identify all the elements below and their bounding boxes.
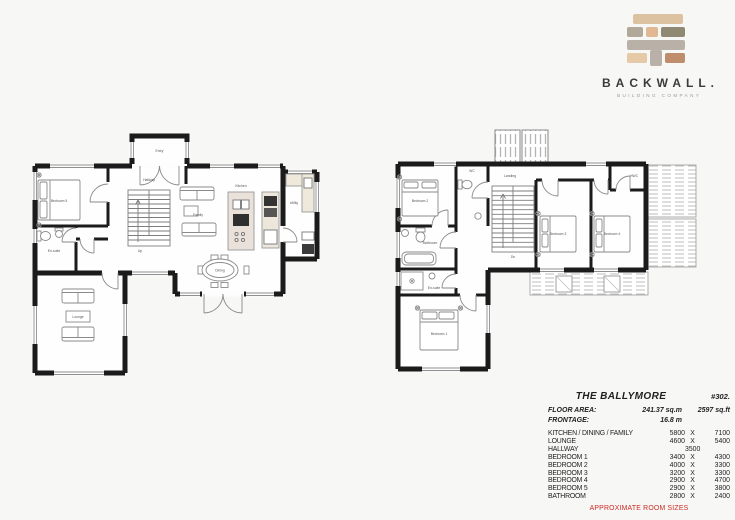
logo-brick	[627, 40, 685, 50]
ground-kitchen	[228, 192, 279, 250]
room-size-row: BEDROOM 42900X4700	[548, 477, 730, 485]
room-size-row: LOUNGE4600X5400	[548, 438, 730, 446]
logo-brick	[661, 27, 685, 37]
room-size-row: BEDROOM 33200X3300	[548, 470, 730, 478]
floor-area-sqm: 241.37 sq.m	[622, 406, 682, 416]
label-ensuite: En-suite	[428, 286, 441, 290]
label-lounge: Lounge	[72, 315, 83, 319]
label-kitchen: Kitchen	[235, 184, 246, 188]
floor-area-label: FLOOR AREA:	[548, 406, 622, 416]
brand-tagline: BUILDING COMPANY	[588, 93, 728, 98]
room-size-list: KITCHEN / DINING / FAMILY5800X7100 LOUNG…	[548, 430, 730, 501]
label-bedroom2: Bedroom 2	[412, 199, 429, 203]
flyer-page: BACKWALL. BUILDING COMPANY	[0, 0, 735, 520]
room-size-row: BEDROOM 13400X4300	[548, 454, 730, 462]
label-dining: Dining	[215, 269, 225, 273]
plan-number: #302.	[694, 392, 730, 401]
label-ensuite: En-suite	[48, 249, 61, 253]
first-stairs	[492, 186, 534, 252]
ground-stairs	[128, 190, 170, 246]
label-family: Family	[193, 213, 203, 217]
label-wc: WC	[469, 169, 475, 173]
room-size-row: BATHROOM2800X2400	[548, 493, 730, 501]
logo: BACKWALL. BUILDING COMPANY	[588, 14, 728, 98]
logo-brick	[627, 53, 647, 63]
label-landing: Landing	[504, 174, 516, 178]
label-hallway: Hallway	[143, 178, 155, 182]
brick-wall-icon	[627, 14, 689, 68]
frontage-label: FRONTAGE:	[548, 416, 622, 426]
label-hwc: HWC	[630, 174, 639, 178]
room-size-row: KITCHEN / DINING / FAMILY5800X7100	[548, 430, 730, 438]
label-bedroom5: Bedroom 5	[51, 199, 68, 203]
first-floor-plan: Landing WC HWC Bedroom 2 Bedroom 3 Bedro…	[388, 120, 710, 372]
room-size-row: HALLWAY3500	[548, 446, 730, 454]
logo-brick	[646, 27, 658, 37]
label-bedroom4: Bedroom 4	[604, 232, 621, 236]
approximate-sizes-note: APPROXIMATE ROOM SIZES	[548, 505, 730, 512]
logo-brick	[633, 14, 683, 24]
room-size-row: BEDROOM 52900X3800	[548, 485, 730, 493]
logo-brick	[665, 53, 685, 63]
logo-brick	[627, 27, 643, 37]
frontage-row: FRONTAGE: 16.8 m	[548, 416, 730, 426]
ground-floor-plan: Entry Bedroom 5 En-suite Hallway Up Fami…	[28, 124, 324, 376]
floor-area-sqft: 2597 sq.ft	[682, 406, 730, 416]
spec-table: THE BALLYMORE #302. FLOOR AREA: 241.37 s…	[548, 391, 730, 512]
house-name: THE BALLYMORE	[548, 391, 694, 402]
label-entry: Entry	[156, 149, 164, 153]
label-bedroom3: Bedroom 3	[550, 232, 567, 236]
label-up: Up	[138, 249, 142, 253]
floor-area-row: FLOOR AREA: 241.37 sq.m 2597 sq.ft	[548, 406, 730, 416]
room-size-row: BEDROOM 24000X3300	[548, 462, 730, 470]
brand-name: BACKWALL.	[588, 76, 728, 90]
label-bathroom: Bathroom	[423, 241, 438, 245]
label-bedroom1: Bedroom 1	[431, 332, 448, 336]
logo-brick	[650, 50, 662, 66]
label-utility: Utility	[290, 201, 299, 205]
label-dn: Dn	[511, 255, 515, 259]
frontage-value: 16.8 m	[622, 416, 682, 426]
spec-header: THE BALLYMORE #302.	[548, 391, 730, 402]
